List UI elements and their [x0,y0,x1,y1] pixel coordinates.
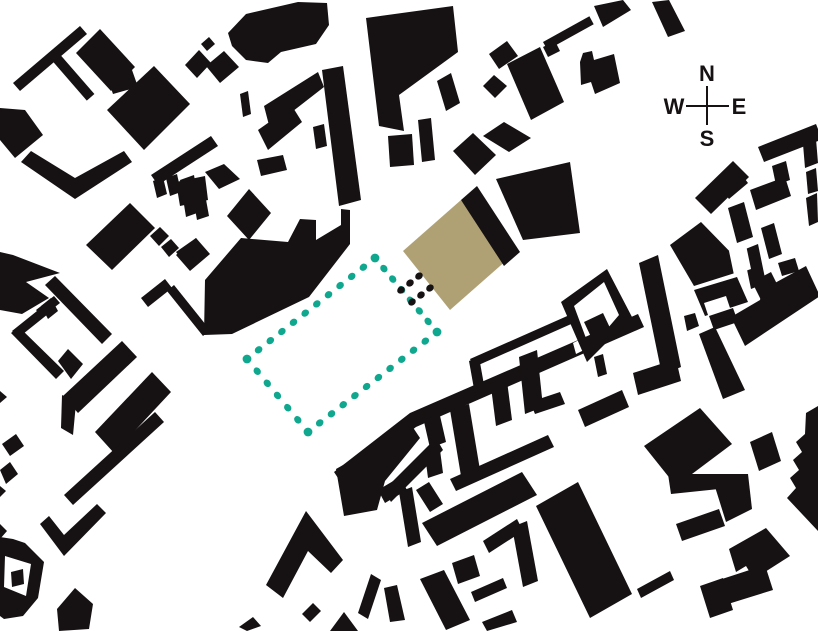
svg-text:S: S [700,126,715,151]
svg-text:W: W [664,94,685,119]
svg-text:E: E [732,94,747,119]
svg-text:N: N [699,61,715,86]
